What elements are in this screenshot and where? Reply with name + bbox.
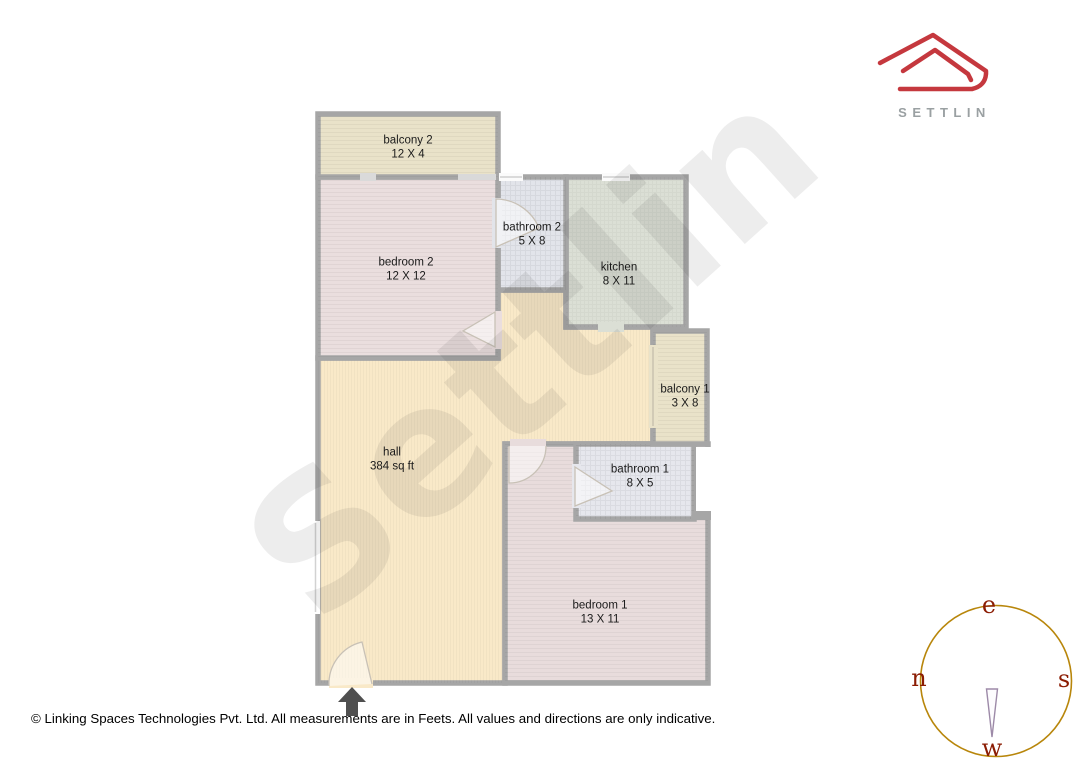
room-name: bathroom 2 [503, 222, 561, 236]
room-dims: 5 X 8 [503, 235, 561, 249]
room-dims: 3 X 8 [660, 397, 709, 411]
settlin-roof-icon [868, 26, 1016, 98]
compass-west: w [982, 734, 1003, 762]
label-kitchen: kitchen 8 X 11 [601, 262, 637, 289]
compass-needle-icon [987, 689, 998, 737]
label-bedroom-2: bedroom 2 12 X 12 [379, 257, 434, 284]
label-bathroom-1: bathroom 1 8 X 5 [611, 464, 669, 491]
label-hall: hall 384 sq ft [370, 447, 414, 474]
compass: e n s w [916, 598, 1078, 760]
compass-east: e [982, 591, 996, 619]
room-name: bedroom 1 [573, 600, 628, 614]
room-name: bathroom 1 [611, 464, 669, 478]
label-bedroom-1: bedroom 1 13 X 11 [573, 600, 628, 627]
room-dims: 13 X 11 [573, 613, 628, 627]
brand-name: SETTLIN [868, 105, 1016, 120]
room-dims: 12 X 4 [383, 148, 432, 162]
service-notch [696, 447, 713, 511]
room-name: balcony 2 [383, 135, 432, 149]
label-bathroom-2: bathroom 2 5 X 8 [503, 222, 561, 249]
compass-south: s [1058, 665, 1070, 693]
room-name: hall [370, 447, 414, 461]
balcony-2-window [360, 173, 376, 181]
room-dims: 12 X 12 [379, 270, 434, 284]
room-name: balcony 1 [660, 384, 709, 398]
room-dims: 8 X 5 [611, 477, 669, 491]
label-balcony-2: balcony 2 12 X 4 [383, 135, 432, 162]
room-name: kitchen [601, 262, 637, 276]
room-kitchen-texture [566, 177, 686, 327]
settlin-logo: SETTLIN [868, 26, 1016, 120]
room-name: bedroom 2 [379, 257, 434, 271]
room-dims: 8 X 11 [601, 275, 637, 289]
label-balcony-1: balcony 1 3 X 8 [660, 384, 709, 411]
compass-north: n [911, 664, 926, 692]
kitchen-door-opening [598, 322, 624, 332]
room-dims: 384 sq ft [370, 460, 414, 474]
footer-disclaimer: © Linking Spaces Technologies Pvt. Ltd. … [31, 711, 715, 726]
floorplan-page: Settlin balcony 2 12 X 4 bedroom 2 12 X … [0, 0, 1080, 764]
balcony-2-wide-window [458, 174, 496, 180]
wall-segment [692, 511, 711, 520]
